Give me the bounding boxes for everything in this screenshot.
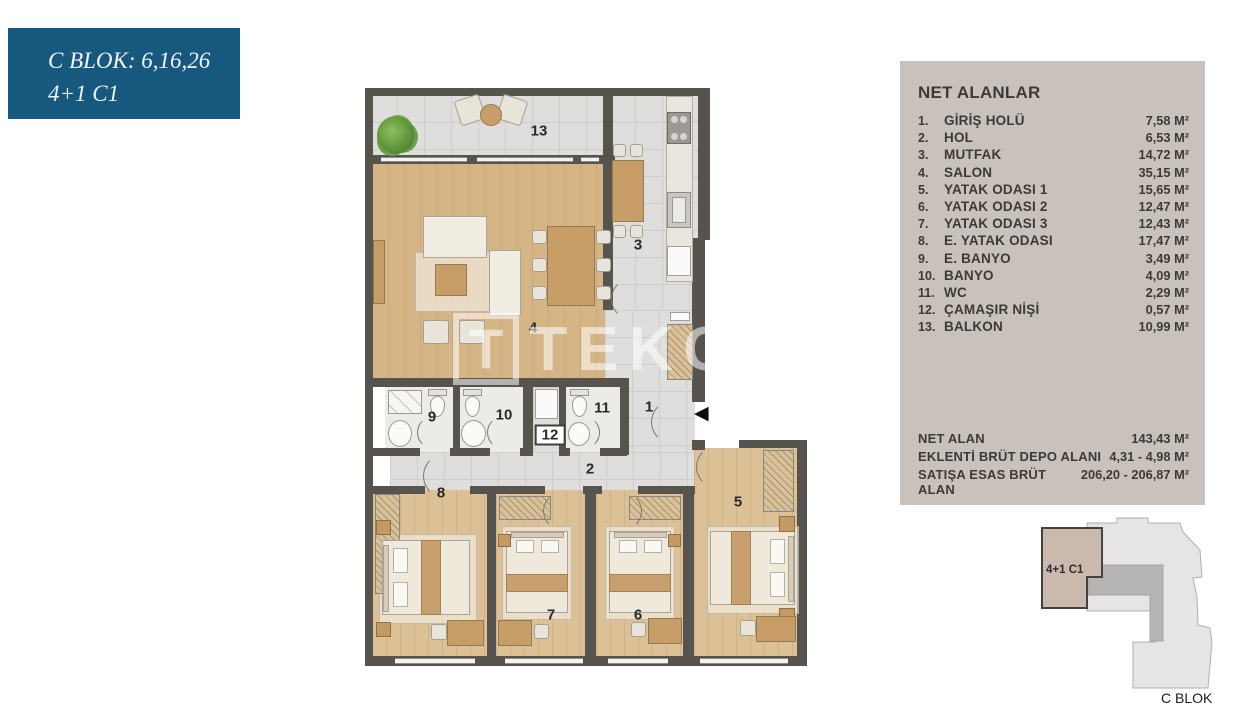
floor-plan: ◀ T TEKCE 12345678910111213 [365, 88, 820, 670]
row-label: WC [944, 285, 1146, 300]
summary-label: NET ALAN [918, 431, 1131, 446]
balcony-table [480, 104, 502, 126]
badge-block-line: C BLOK: 6,16,26 [48, 44, 240, 77]
bed7-desk [498, 620, 532, 646]
bath-sink [461, 420, 486, 447]
row-number: 12. [918, 303, 944, 317]
summary-row: EKLENTİ BRÜT DEPO ALANI4,31 - 4,98 M² [918, 449, 1189, 467]
room-label-e-banyo: 9 [428, 409, 436, 426]
dining-chair [596, 286, 611, 300]
net-area-row: 3.MUTFAK14,72 M² [918, 147, 1189, 164]
row-label: SALON [944, 165, 1138, 180]
bed7-window [505, 658, 583, 664]
row-number: 9. [918, 252, 944, 266]
bed5-chair [740, 620, 756, 636]
row-number: 10. [918, 269, 944, 283]
dining-table [547, 226, 595, 306]
wall-bed7-top [496, 486, 545, 494]
row-value: 15,65 M² [1138, 182, 1189, 197]
bed5-bed [710, 531, 795, 605]
net-area-row: 13.BALKON10,99 M² [918, 319, 1189, 336]
kitchen-chair [613, 225, 626, 238]
nightstand [376, 520, 391, 535]
salon-window-1 [381, 157, 467, 162]
row-number: 13. [918, 320, 944, 334]
washer [535, 389, 558, 419]
net-area-row: 11.WC2,29 M² [918, 285, 1189, 302]
door-arc-entry [651, 400, 695, 444]
room-label-giris-holu: 1 [645, 399, 653, 416]
row-number: 1. [918, 114, 944, 128]
summary-value: 4,31 - 4,98 M² [1109, 449, 1189, 464]
kitchen-chair [613, 144, 626, 157]
summary-label: SATIŞA ESAS BRÜT ALAN [918, 467, 1081, 497]
kitchen-table [612, 160, 644, 222]
nightstand [498, 534, 511, 547]
wall-room5-top-b [739, 440, 807, 448]
wall-left [365, 88, 373, 666]
row-number: 11. [918, 286, 944, 300]
row-number: 6. [918, 200, 944, 214]
row-label: ÇAMAŞIR NİŞİ [944, 302, 1146, 317]
row-value: 10,99 M² [1138, 319, 1189, 334]
room-label-e-yatak-odasi: 8 [437, 485, 445, 502]
ebath-sink [388, 420, 412, 447]
wall-bed7-right [585, 486, 596, 666]
key-plan-svg: 4+1 C1 C BLOK [1040, 515, 1235, 711]
dining-chair [532, 286, 547, 300]
net-area-row: 7.YATAK ODASI 312,43 M² [918, 216, 1189, 233]
watermark-text: TEKCE [529, 314, 789, 385]
row-number: 8. [918, 234, 944, 248]
row-value: 17,47 M² [1138, 233, 1189, 248]
row-label: E. BANYO [944, 251, 1146, 266]
salon-armchair-1 [423, 320, 449, 344]
wall-bed6-right [683, 486, 694, 666]
wall-bed8-top-a [372, 486, 425, 494]
bed8-bed [382, 540, 470, 615]
row-number: 5. [918, 183, 944, 197]
dining-chair [532, 230, 547, 244]
summary-value: 206,20 - 206,87 M² [1081, 467, 1189, 482]
net-area-row: 10.BANYO4,09 M² [918, 268, 1189, 285]
nightstand [376, 622, 391, 637]
wall-bath-bottom-a [372, 448, 420, 456]
row-label: YATAK ODASI 2 [944, 199, 1138, 214]
room-label-yatak-odasi-2: 6 [634, 607, 642, 624]
coffee-table [435, 264, 467, 296]
row-number: 2. [918, 131, 944, 145]
bed6-window [608, 658, 668, 664]
room-label-hol: 2 [586, 461, 594, 478]
wall-top [365, 88, 615, 96]
room-label-balkon: 13 [531, 123, 548, 140]
entry-arrow-icon: ◀ [694, 404, 709, 423]
bed5-window [700, 658, 788, 664]
net-area-row: 5.YATAK ODASI 115,65 M² [918, 182, 1189, 199]
summary-row: NET ALAN143,43 M² [918, 431, 1189, 449]
plant-icon [377, 116, 415, 154]
nightstand [668, 534, 681, 547]
bed6-desk [648, 618, 682, 644]
net-areas-list: 1.GİRİŞ HOLÜ7,58 M²2.HOL6,53 M²3.MUTFAK1… [918, 113, 1189, 336]
row-value: 0,57 M² [1146, 302, 1189, 317]
wall-bath-div-1 [453, 387, 460, 455]
summary-value: 143,43 M² [1131, 431, 1189, 446]
shower [388, 390, 422, 414]
nightstand [779, 516, 795, 532]
summary-row: SATIŞA ESAS BRÜT ALAN206,20 - 206,87 M² [918, 467, 1189, 485]
row-value: 3,49 M² [1146, 251, 1189, 266]
salon-sofa-horizontal [423, 216, 487, 258]
room-label-banyo: 10 [496, 407, 513, 424]
kitchen-chair [630, 144, 643, 157]
title-badge: C BLOK: 6,16,26 4+1 C1 [8, 28, 240, 119]
row-value: 7,58 M² [1146, 113, 1189, 128]
net-areas-summary: NET ALAN143,43 M²EKLENTİ BRÜT DEPO ALANI… [918, 431, 1189, 485]
bed6-chair [631, 622, 646, 637]
row-value: 12,47 M² [1138, 199, 1189, 214]
row-number: 4. [918, 166, 944, 180]
net-areas-panel: NET ALANLAR 1.GİRİŞ HOLÜ7,58 M²2.HOL6,53… [900, 61, 1205, 505]
dining-chair [532, 258, 547, 272]
wall-room5-top-a [692, 440, 699, 448]
wall-right-kitchen [698, 88, 710, 240]
bed5-desk [756, 616, 796, 642]
keyplan-unit-label: 4+1 C1 [1046, 564, 1084, 576]
door-arc-bed7 [543, 492, 581, 530]
wall-bath-div-2 [523, 387, 533, 455]
row-label: YATAK ODASI 3 [944, 216, 1138, 231]
door-arc-wc [567, 416, 600, 449]
row-value: 6,53 M² [1146, 130, 1189, 145]
row-label: YATAK ODASI 1 [944, 182, 1138, 197]
room-label-yatak-odasi-1: 5 [734, 494, 742, 511]
room-label-camasir-nisi: 12 [535, 425, 566, 446]
bed8-desk [447, 620, 484, 646]
net-area-row: 6.YATAK ODASI 212,47 M² [918, 199, 1189, 216]
bed5-wardrobe [763, 450, 794, 512]
key-plan: 4+1 C1 C BLOK [1040, 515, 1235, 711]
row-number: 3. [918, 148, 944, 162]
dishwasher [667, 246, 691, 276]
net-area-row: 2.HOL6,53 M² [918, 130, 1189, 147]
net-area-row: 8.E. YATAK ODASI17,47 M² [918, 233, 1189, 250]
row-label: E. YATAK ODASI [944, 233, 1138, 248]
row-value: 35,15 M² [1138, 165, 1189, 180]
row-number: 7. [918, 217, 944, 231]
stove [667, 112, 691, 144]
wall-bath-bottom-b [450, 448, 490, 456]
bed7-bed [506, 531, 568, 613]
row-value: 2,29 M² [1146, 285, 1189, 300]
watermark-logo: T [453, 313, 519, 385]
row-label: HOL [944, 130, 1146, 145]
badge-unit-line: 4+1 C1 [48, 77, 240, 110]
dining-chair [596, 258, 611, 272]
bed8-chair [431, 624, 447, 640]
room-label-yatak-odasi-3: 7 [547, 607, 555, 624]
wall-bath-bottom-d [559, 448, 570, 456]
net-area-row: 4.SALON35,15 M² [918, 165, 1189, 182]
bed7-chair [534, 624, 549, 639]
kitchen-sink [667, 192, 691, 228]
door-arc-bed5 [696, 446, 738, 488]
row-label: MUTFAK [944, 147, 1138, 162]
door-arc-bed6 [604, 492, 642, 530]
summary-label: EKLENTİ BRÜT DEPO ALANI [918, 449, 1109, 464]
net-area-row: 9.E. BANYO3,49 M² [918, 251, 1189, 268]
bed8-window [395, 658, 475, 664]
row-label: GİRİŞ HOLÜ [944, 113, 1146, 128]
row-label: BANYO [944, 268, 1146, 283]
room-label-mutfak: 3 [634, 237, 642, 254]
row-value: 14,72 M² [1138, 147, 1189, 162]
panel-title: NET ALANLAR [918, 83, 1040, 103]
watermark: T TEKCE [453, 306, 813, 392]
wc-toilet [570, 389, 589, 417]
net-area-row: 12.ÇAMAŞIR NİŞİ0,57 M² [918, 302, 1189, 319]
sideboard [373, 240, 385, 304]
keyplan-block-label: C BLOK [1161, 690, 1213, 706]
wall-bath-bottom-e [600, 448, 627, 456]
bath-toilet [463, 389, 482, 417]
wall-bed8-right [487, 486, 496, 666]
net-area-row: 1.GİRİŞ HOLÜ7,58 M² [918, 113, 1189, 130]
row-value: 4,09 M² [1146, 268, 1189, 283]
salon-window-2 [477, 157, 573, 162]
wall-top-kitchen [603, 88, 710, 96]
wall-bath-bottom-c [520, 448, 533, 456]
dining-chair [596, 230, 611, 244]
row-label: BALKON [944, 319, 1138, 334]
room-label-wc: 11 [594, 400, 610, 417]
bed6-bed [609, 531, 671, 613]
row-value: 12,43 M² [1138, 216, 1189, 231]
salon-window-3 [581, 157, 599, 162]
